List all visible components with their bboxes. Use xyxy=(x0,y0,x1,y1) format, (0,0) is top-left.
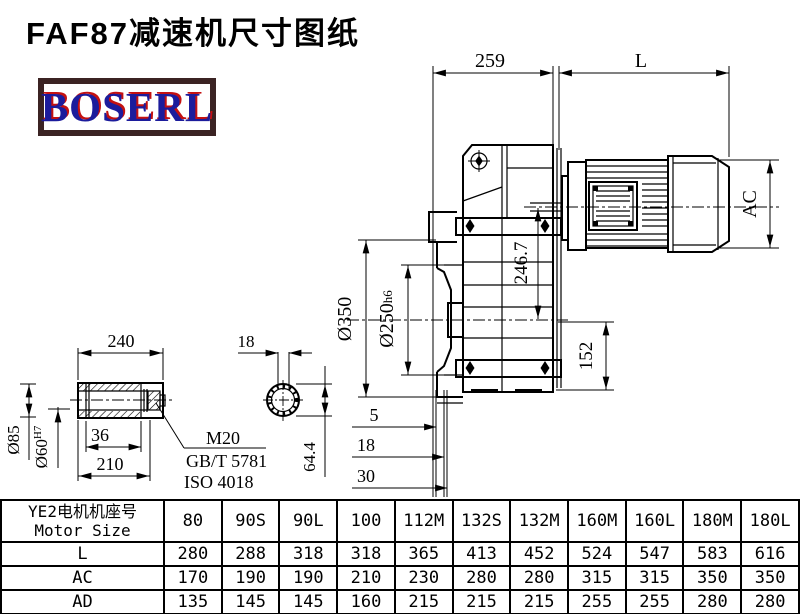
dim-label: 210 xyxy=(97,454,124,474)
table-row: AD135145145160215215215255255280280 xyxy=(1,590,799,614)
dimension-value-cell: 170 xyxy=(164,566,222,590)
dimension-value-cell: 350 xyxy=(741,566,799,590)
dimension-value-cell: 280 xyxy=(741,590,799,614)
table-row: AC170190190210230280280315315350350 xyxy=(1,566,799,590)
dimension-value-cell: 160 xyxy=(337,590,395,614)
bolt-standard: ISO 4018 xyxy=(184,472,254,492)
dim-label: Ø60H7 xyxy=(32,425,51,468)
row-label-AD: AD xyxy=(1,590,164,614)
frame-size-column-header: 80 xyxy=(164,500,222,542)
dim-label: 240 xyxy=(108,331,135,351)
dim-label: Ø250h6 xyxy=(376,290,398,348)
dimension-value-cell: 255 xyxy=(568,590,626,614)
dimension-value-cell: 255 xyxy=(626,590,684,614)
dim-label: 5 xyxy=(370,405,379,425)
dimension-value-cell: 315 xyxy=(626,566,684,590)
frame-size-column-header: 132M xyxy=(510,500,568,542)
frame-size-column-header: 160M xyxy=(568,500,626,542)
dimension-value-cell: 318 xyxy=(279,542,337,566)
dimension-value-cell: 190 xyxy=(279,566,337,590)
dimension-value-cell: 365 xyxy=(395,542,453,566)
frame-size-column-header: 180L xyxy=(741,500,799,542)
row-label-L: L xyxy=(1,542,164,566)
motor-fins xyxy=(587,166,667,246)
dimension-value-cell: 215 xyxy=(510,590,568,614)
frame-size-column-header: 90S xyxy=(222,500,280,542)
dim-label: 18 xyxy=(238,332,255,351)
dimension-value-cell: 350 xyxy=(683,566,741,590)
dim-246-7: 246.7 xyxy=(511,208,538,319)
dimension-value-cell: 280 xyxy=(453,566,511,590)
dimension-value-cell: 452 xyxy=(510,542,568,566)
motor-size-header-cell: YE2电机机座号Motor Size xyxy=(1,500,164,542)
dimension-value-cell: 547 xyxy=(626,542,684,566)
dimension-value-cell: 524 xyxy=(568,542,626,566)
dim-label: 36 xyxy=(91,425,109,445)
dimension-value-cell: 315 xyxy=(568,566,626,590)
dim-152: 152 xyxy=(556,322,614,390)
dimension-value-cell: 616 xyxy=(741,542,799,566)
dim-label: Ø85 xyxy=(4,425,23,454)
terminal-box xyxy=(589,182,637,230)
frame-size-column-header: 180M xyxy=(683,500,741,542)
bolt-hole-icon xyxy=(468,150,490,172)
dim-label: AC xyxy=(739,190,761,218)
gearbox-housing xyxy=(456,145,562,393)
fan-cover xyxy=(668,156,729,252)
dimension-value-cell: 230 xyxy=(395,566,453,590)
dim-259: 259 xyxy=(433,50,553,497)
row-label-AC: AC xyxy=(1,566,164,590)
motor-size-header-en: Motor Size xyxy=(2,521,163,540)
bolt-callout: M20 GB/T 5781 ISO 4018 xyxy=(156,403,267,492)
dimension-value-cell: 135 xyxy=(164,590,222,614)
dim-label: 64.4 xyxy=(300,442,319,472)
dim-label: 246.7 xyxy=(511,242,532,285)
table-header-row: YE2电机机座号Motor Size8090S90L100112M132S132… xyxy=(1,500,799,542)
frame-size-column-header: 132S xyxy=(453,500,511,542)
bolt-icon xyxy=(541,361,550,375)
frame-size-column-header: 100 xyxy=(337,500,395,542)
table-row: L280288318318365413452524547583616 xyxy=(1,542,799,566)
dim-label: L xyxy=(635,50,647,72)
dimension-value-cell: 280 xyxy=(164,542,222,566)
dimension-value-cell: 145 xyxy=(222,590,280,614)
motor-size-header-cn: YE2电机机座号 xyxy=(2,502,163,521)
dim-label: Ø350 xyxy=(334,297,356,341)
dimension-value-cell: 318 xyxy=(337,542,395,566)
dimension-value-cell: 210 xyxy=(337,566,395,590)
dim-L: L xyxy=(559,50,729,157)
dimension-value-cell: 215 xyxy=(453,590,511,614)
dim-label: 259 xyxy=(475,50,505,72)
dimension-value-cell: 190 xyxy=(222,566,280,590)
frame-size-column-header: 112M xyxy=(395,500,453,542)
dimension-value-cell: 288 xyxy=(222,542,280,566)
technical-drawing: 259 L AC 246.7 xyxy=(0,0,800,500)
dimension-value-cell: 583 xyxy=(683,542,741,566)
dimension-value-cell: 280 xyxy=(510,566,568,590)
frame-size-column-header: 90L xyxy=(279,500,337,542)
bolt-icon xyxy=(541,219,550,233)
bolt-icon xyxy=(466,219,475,233)
dimension-value-cell: 215 xyxy=(395,590,453,614)
frame-size-column-header: 160L xyxy=(626,500,684,542)
shaft-detail: 240 Ø85 Ø60H7 36 210 xyxy=(4,331,267,492)
bolt-standard: GB/T 5781 xyxy=(186,451,267,471)
dim-label: 30 xyxy=(357,466,375,486)
dim-label: 152 xyxy=(576,342,597,371)
bolt-spec: M20 xyxy=(206,428,240,448)
drawing-sheet: FAF87减速机尺寸图纸 BOSERL xyxy=(0,0,800,614)
bolt-icon xyxy=(466,361,475,375)
motor-size-table: YE2电机机座号Motor Size8090S90L100112M132S132… xyxy=(0,499,800,614)
dim-AC: AC xyxy=(718,160,779,248)
dimension-value-cell: 145 xyxy=(279,590,337,614)
dimension-value-cell: 280 xyxy=(683,590,741,614)
dimension-value-cell: 413 xyxy=(453,542,511,566)
dim-label: 18 xyxy=(357,435,375,455)
